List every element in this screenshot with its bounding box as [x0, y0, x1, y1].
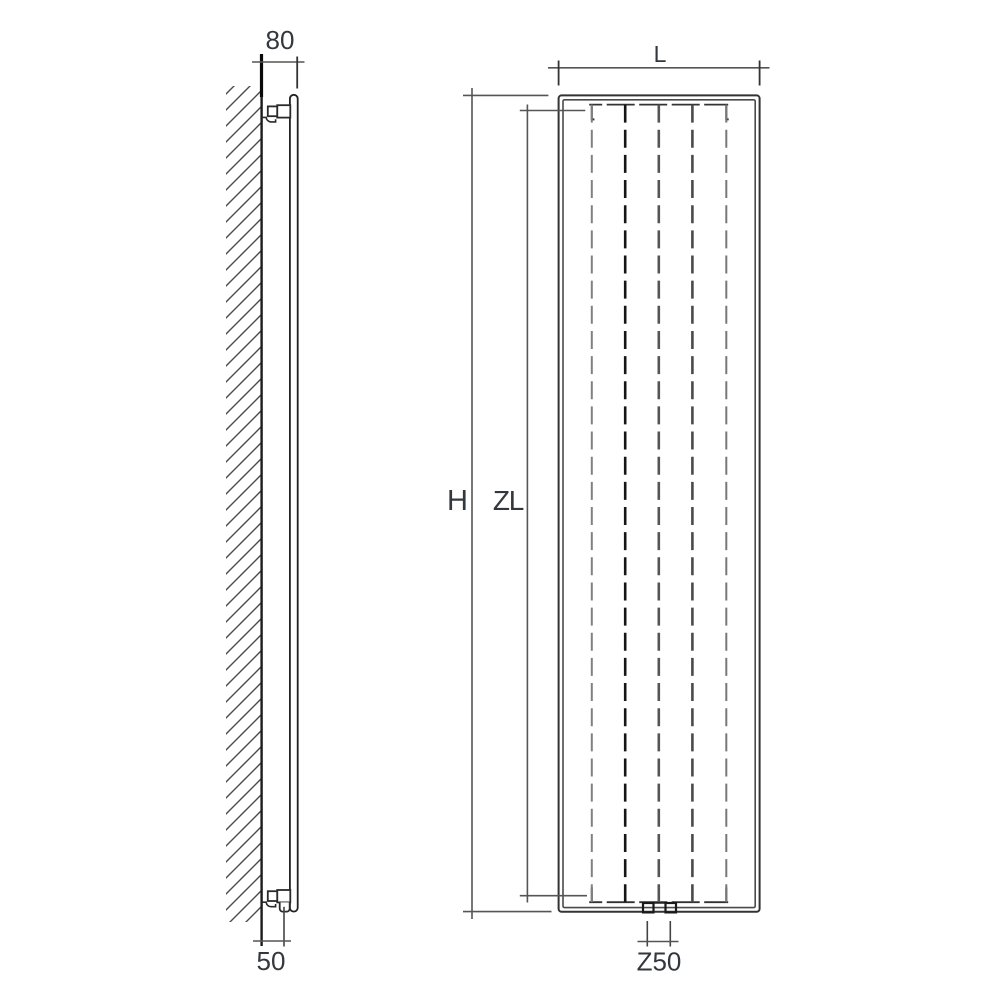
svg-text:L: L: [654, 41, 667, 67]
svg-text:80: 80: [266, 25, 295, 55]
svg-text:50: 50: [257, 946, 286, 976]
svg-text:ZL: ZL: [493, 485, 524, 516]
svg-text:Z50: Z50: [637, 947, 682, 977]
svg-text:H: H: [447, 485, 468, 517]
